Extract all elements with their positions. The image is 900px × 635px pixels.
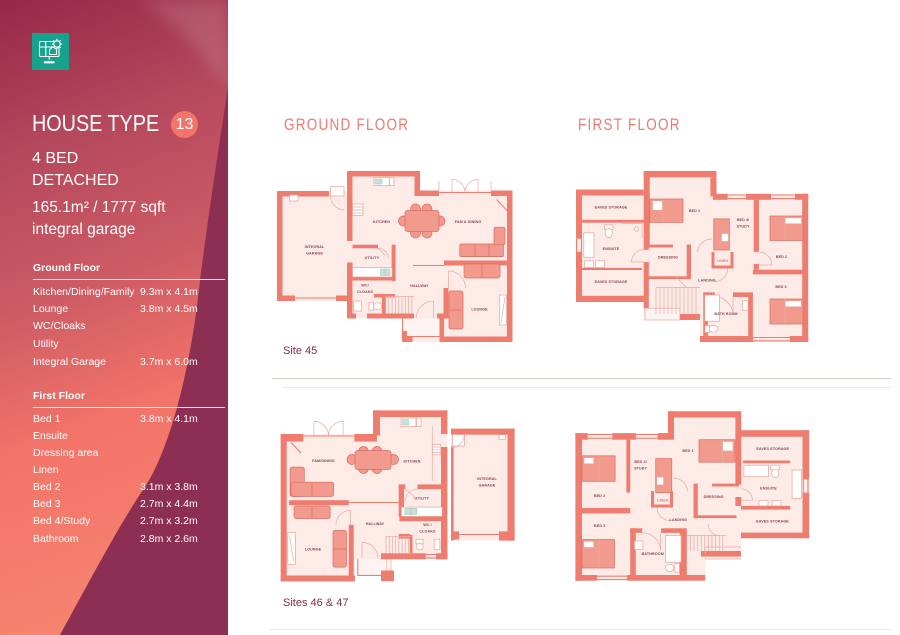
- svg-text:BED 3: BED 3: [594, 524, 605, 528]
- svg-text:FAM & DINING: FAM & DINING: [455, 220, 482, 224]
- svg-text:HALLWAY: HALLWAY: [410, 284, 429, 288]
- svg-text:GARAGE: GARAGE: [479, 484, 496, 488]
- svg-text:UTILITY: UTILITY: [414, 497, 429, 501]
- svg-text:WC /: WC /: [423, 523, 432, 527]
- svg-text:KITCHEN: KITCHEN: [403, 460, 420, 464]
- svg-text:STUDY: STUDY: [737, 225, 750, 229]
- svg-text:CLOAKS: CLOAKS: [357, 290, 374, 294]
- svg-text:BATH ROOM: BATH ROOM: [714, 312, 737, 316]
- svg-text:EAVES STORAGE: EAVES STORAGE: [595, 206, 628, 210]
- svg-text:EAVES STORAGE: EAVES STORAGE: [595, 280, 628, 284]
- svg-text:LOUNGE: LOUNGE: [471, 308, 488, 312]
- svg-text:CLOAKS: CLOAKS: [419, 529, 436, 533]
- svg-text:BED 4/: BED 4/: [634, 460, 647, 464]
- svg-text:INTEGRAL: INTEGRAL: [477, 477, 497, 481]
- svg-text:KITCHEN: KITCHEN: [373, 220, 390, 224]
- svg-text:LINEN: LINEN: [717, 259, 728, 263]
- svg-text:LOUNGE: LOUNGE: [305, 547, 322, 551]
- svg-text:UTILITY: UTILITY: [365, 256, 380, 260]
- svg-text:ENSUITE: ENSUITE: [760, 486, 777, 490]
- svg-text:BED 1: BED 1: [689, 209, 700, 213]
- svg-text:GARAGE: GARAGE: [306, 252, 323, 256]
- svg-text:DRESSING: DRESSING: [658, 256, 678, 260]
- svg-text:EAVES STORAGE: EAVES STORAGE: [756, 520, 789, 524]
- svg-text:DRESSING: DRESSING: [704, 495, 724, 499]
- svg-text:STUDY: STUDY: [634, 467, 647, 471]
- svg-text:LANDING: LANDING: [670, 518, 688, 522]
- svg-text:HALLWAY: HALLWAY: [366, 522, 385, 526]
- svg-text:BED 3: BED 3: [775, 285, 786, 289]
- svg-text:WC/: WC/: [361, 284, 368, 288]
- svg-text:FAM/DINING: FAM/DINING: [312, 459, 335, 463]
- svg-text:EAVES STORAGE: EAVES STORAGE: [756, 447, 789, 451]
- svg-text:BATHROOM: BATHROOM: [642, 552, 664, 556]
- svg-text:LANDING: LANDING: [698, 279, 716, 283]
- svg-text:BED 2: BED 2: [594, 494, 605, 498]
- svg-text:LINEN: LINEN: [657, 499, 668, 503]
- svg-text:BED 4/: BED 4/: [737, 218, 750, 222]
- svg-text:ENSUITE: ENSUITE: [603, 247, 620, 251]
- svg-text:BED 1: BED 1: [682, 449, 693, 453]
- svg-text:BED 2: BED 2: [776, 255, 787, 259]
- svg-text:INTEGRAL: INTEGRAL: [305, 245, 325, 249]
